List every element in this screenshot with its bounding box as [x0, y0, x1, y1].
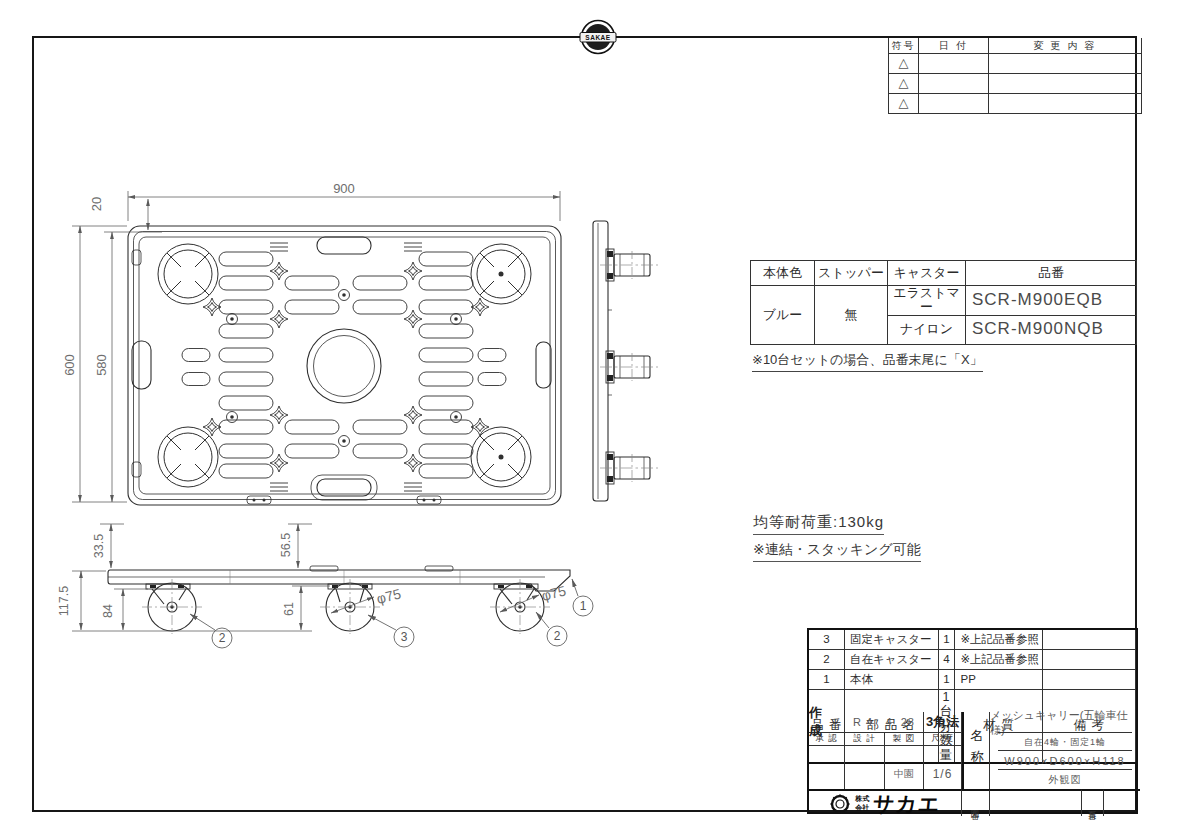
part-name: 固定キャスター [845, 630, 939, 650]
product-option-table: 本体色 ストッパー キャスター 品番 ブルー 無 エラストマー SCR-M900… [750, 260, 1137, 345]
drawing-view-type: 外観図 [990, 770, 1140, 789]
scale-value: 1/6 [924, 746, 962, 789]
revision-col-date: 日 付 [919, 38, 989, 54]
side-caster-top [600, 249, 658, 281]
created-label: 作 成 [809, 712, 845, 733]
side-view [593, 221, 658, 501]
sakae-gear-icon [829, 793, 851, 815]
product-col-stopper: ストッパー [815, 261, 888, 286]
design-signature [845, 746, 885, 789]
product-name: メッシュキャリー(五輪車仕様) [990, 712, 1140, 733]
dim-61: 61 [282, 602, 296, 616]
front-caster-left [142, 579, 202, 634]
revision-triangle-icon: △ [889, 94, 919, 114]
part-qty: 1 [938, 630, 955, 650]
drafter-signature: 中園 [885, 746, 924, 789]
part-material: ※上記品番参照 [955, 630, 1043, 650]
revision-col-symbol: 符号 [889, 38, 919, 54]
product-body-color: ブルー [751, 286, 815, 345]
draft-label: 製 図 [885, 733, 924, 746]
empty-cell [919, 74, 989, 94]
company-logo: 株式 会社 サカエ [829, 790, 940, 818]
projection-method: 3角法 [924, 712, 962, 733]
empty-cell [989, 74, 1142, 94]
page-no-value [1104, 789, 1140, 816]
set-note: ※10台セットの場合、品番末尾に「X」 [752, 351, 983, 372]
stacking-note: ※連結・スタッキング可能 [753, 541, 921, 562]
drawing-no-value [990, 789, 1082, 816]
sakae-logo-text: SAKAE [585, 34, 610, 41]
revision-col-desc: 変 更 内 容 [989, 38, 1142, 54]
product-caster-type: ナイロン [888, 315, 966, 344]
balloon-3: 3 [401, 630, 408, 644]
product-stopper: 無 [815, 286, 888, 345]
dim-56-5: 56.5 [279, 533, 293, 557]
part-material: ※上記品番参照 [955, 650, 1043, 670]
sakae-top-logo: SAKAE [580, 21, 616, 54]
part-remarks [1043, 650, 1136, 670]
balloon-1: 1 [580, 599, 587, 613]
part-qty: 4 [938, 650, 955, 670]
front-view [108, 566, 570, 634]
approved-signature [809, 746, 845, 789]
balloon-2-right: 2 [554, 629, 561, 643]
empty-cell [989, 54, 1142, 74]
approved-label: 承 認 [809, 733, 845, 746]
dim-84: 84 [101, 604, 115, 618]
product-col-code: 品番 [966, 261, 1137, 286]
dim-dia75-center: φ75 [375, 585, 403, 607]
company-prefix-line2: 会社 [855, 804, 869, 812]
side-caster-middle [600, 351, 658, 383]
product-caster-type: エラストマー [888, 286, 966, 316]
part-no: 2 [809, 650, 845, 670]
drawing-sheet-page: { "sheet": { "logo_top": "SAKAE" }, "rev… [0, 0, 1181, 835]
product-spec: 自在4輪・固定1輪 [990, 733, 1140, 751]
title-block: 3 固定キャスター 1 ※上記品番参照 2 自在キャスター 4 ※上記品番参照 … [807, 628, 1138, 814]
part-qty: 1 [938, 670, 955, 690]
scale-label: 尺 度 [924, 733, 962, 746]
front-caster-center [320, 579, 380, 634]
part-name: 自在キャスター [845, 650, 939, 670]
dim-900: 900 [333, 181, 355, 196]
empty-cell [989, 94, 1142, 114]
product-col-caster: キャスター [888, 261, 966, 286]
created-date: R 4. 4. 28 [845, 712, 924, 733]
part-no: 1 [809, 670, 845, 690]
product-code: SCR-M900EQB [966, 286, 1137, 316]
company-prefix-line1: 株式 [855, 795, 869, 803]
product-col-body-color: 本体色 [751, 261, 815, 286]
product-size: W900×D600×H118 [990, 751, 1140, 770]
top-view-plate [128, 226, 561, 505]
part-no: 3 [809, 630, 845, 650]
part-remarks [1043, 670, 1136, 690]
dim-dia75-right: φ75 [540, 582, 568, 604]
part-material: PP [955, 670, 1043, 690]
name-label: 名称 [962, 712, 990, 789]
drawing-no-label: 図番 [962, 789, 990, 816]
page-no-label: 頁番 [1082, 789, 1104, 816]
side-caster-bottom [600, 452, 658, 484]
balloon-2-left: 2 [219, 631, 226, 645]
dim-600: 600 [62, 354, 77, 376]
dim-20: 20 [89, 197, 104, 211]
dim-117-5: 117.5 [57, 586, 71, 616]
design-label: 設 計 [845, 733, 885, 746]
part-name: 本体 [845, 670, 939, 690]
revision-table: 符号 日 付 変 更 内 容 △ △ △ [888, 38, 1142, 114]
revision-triangle-icon: △ [889, 74, 919, 94]
product-code: SCR-M900NQB [966, 315, 1137, 344]
company-name: サカエ [872, 790, 942, 818]
empty-cell [919, 54, 989, 74]
company-logo-cell: 株式 会社 サカエ [809, 789, 962, 816]
empty-cell [919, 94, 989, 114]
dim-33-5: 33.5 [92, 534, 106, 558]
dim-580: 580 [94, 354, 109, 376]
load-capacity-note: 均等耐荷重:130kg [753, 513, 884, 535]
front-view-dimensions: 33.5 56.5 117.5 84 61 φ75 φ75 [57, 524, 568, 631]
revision-triangle-icon: △ [889, 54, 919, 74]
part-remarks [1043, 630, 1136, 650]
